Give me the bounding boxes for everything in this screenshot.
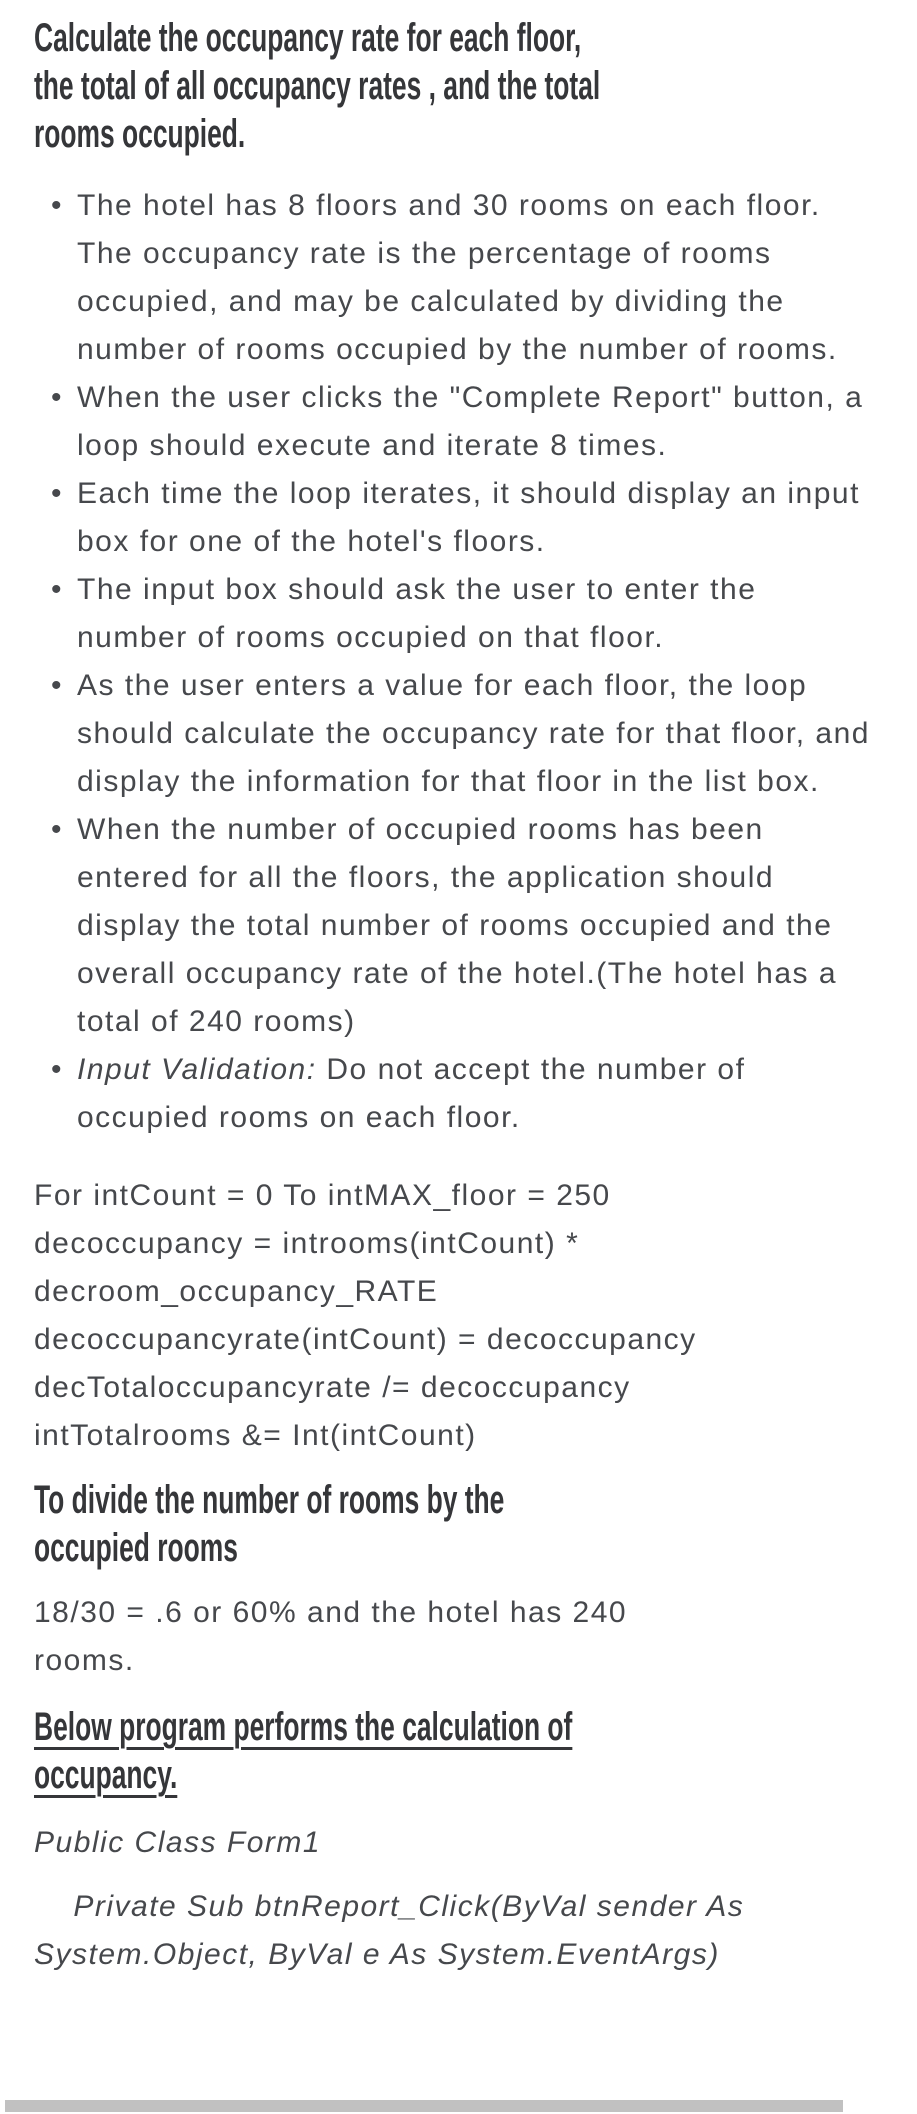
list-item: • The hotel has 8 floors and 30 rooms on… bbox=[34, 182, 873, 374]
bullet-icon: • bbox=[34, 566, 77, 614]
list-item-text: Each time the loop iterates, it should d… bbox=[77, 470, 873, 566]
requirements-list: • The hotel has 8 floors and 30 rooms on… bbox=[34, 182, 873, 1142]
vb-sub-line: Private Sub btnReport_Click(ByVal sender… bbox=[34, 1883, 873, 1979]
list-item-text: Input Validation: Do not accept the numb… bbox=[77, 1046, 873, 1142]
horizontal-scrollbar[interactable] bbox=[0, 2099, 917, 2114]
divide-heading: To divide the number of rooms by the occ… bbox=[34, 1476, 870, 1572]
bullet-icon: • bbox=[34, 1046, 77, 1094]
question-heading: Calculate the occupancy rate for each fl… bbox=[34, 14, 870, 158]
list-item: • When the user clicks the "Complete Rep… bbox=[34, 374, 873, 470]
bullet-icon: • bbox=[34, 806, 77, 854]
list-item: • The input box should ask the user to e… bbox=[34, 566, 873, 662]
vb-loop-code: For intCount = 0 To intMAX_floor = 250 d… bbox=[34, 1172, 873, 1460]
scrollbar-thumb[interactable] bbox=[5, 2100, 843, 2112]
bullet-icon: • bbox=[34, 470, 77, 518]
bullet-icon: • bbox=[34, 662, 77, 710]
bullet-icon: • bbox=[34, 182, 77, 230]
list-item-text: The input box should ask the user to ent… bbox=[77, 566, 873, 662]
list-item-text: When the user clicks the "Complete Repor… bbox=[77, 374, 873, 470]
list-item: • When the number of occupied rooms has … bbox=[34, 806, 873, 1046]
list-item: • Input Validation: Do not accept the nu… bbox=[34, 1046, 873, 1142]
input-validation-label: Input Validation: bbox=[77, 1053, 317, 1086]
ratio-paragraph: 18/30 = .6 or 60% and the hotel has 240 … bbox=[34, 1589, 873, 1685]
list-item-text: The hotel has 8 floors and 30 rooms on e… bbox=[77, 182, 873, 374]
list-item-text: As the user enters a value for each floo… bbox=[77, 662, 873, 806]
vb-class-line: Public Class Form1 bbox=[34, 1819, 873, 1867]
below-program-heading: Below program performs the calculation o… bbox=[34, 1703, 870, 1799]
bullet-icon: • bbox=[34, 374, 77, 422]
answer-document: Calculate the occupancy rate for each fl… bbox=[0, 0, 917, 1979]
list-item: • As the user enters a value for each fl… bbox=[34, 662, 873, 806]
list-item: • Each time the loop iterates, it should… bbox=[34, 470, 873, 566]
list-item-text: When the number of occupied rooms has be… bbox=[77, 806, 873, 1046]
